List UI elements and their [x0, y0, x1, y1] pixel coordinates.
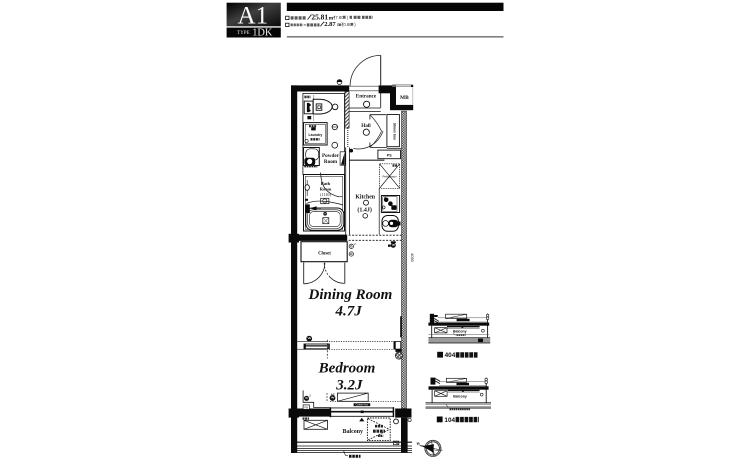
svg-text:A1: A1: [238, 2, 269, 29]
svg-text:4050: 4050: [410, 253, 415, 263]
svg-text:Bedroom: Bedroom: [318, 360, 376, 376]
svg-text:(7.80: (7.80: [334, 15, 344, 20]
svg-text:1DK: 1DK: [252, 27, 273, 38]
svg-text:3.2J: 3.2J: [335, 378, 363, 394]
svg-text:Hall: Hall: [361, 123, 371, 129]
svg-text:Curtain box: Curtain box: [356, 404, 370, 407]
svg-text:25.81: 25.81: [311, 12, 328, 21]
svg-text:Balcony: Balcony: [343, 429, 363, 435]
svg-text:(1.4J): (1.4J): [357, 207, 372, 214]
svg-text:MB: MB: [400, 95, 409, 101]
svg-text:4.7J: 4.7J: [334, 303, 362, 319]
svg-text:PS: PS: [387, 154, 392, 158]
svg-text:Closet: Closet: [318, 251, 331, 256]
svg-text:Balcony: Balcony: [453, 330, 467, 334]
svg-text:Balcony: Balcony: [453, 395, 467, 399]
svg-text:(0.86: (0.86: [342, 22, 352, 27]
svg-text:2.87: 2.87: [324, 21, 336, 28]
svg-text:Entrance: Entrance: [356, 93, 377, 99]
svg-text:Room: Room: [324, 159, 338, 165]
svg-text:Laundry: Laundry: [308, 133, 322, 137]
svg-text:404: 404: [445, 352, 456, 359]
svg-text:Dining Room: Dining Room: [308, 287, 393, 303]
svg-text:Refrigerator: Refrigerator: [382, 174, 396, 178]
svg-text:Kitchen: Kitchen: [355, 194, 375, 200]
svg-text:FB: FB: [305, 406, 309, 410]
svg-text:Shoes box: Shoes box: [393, 123, 397, 140]
svg-text:104: 104: [444, 417, 455, 424]
svg-text:TYPE: TYPE: [237, 31, 250, 36]
